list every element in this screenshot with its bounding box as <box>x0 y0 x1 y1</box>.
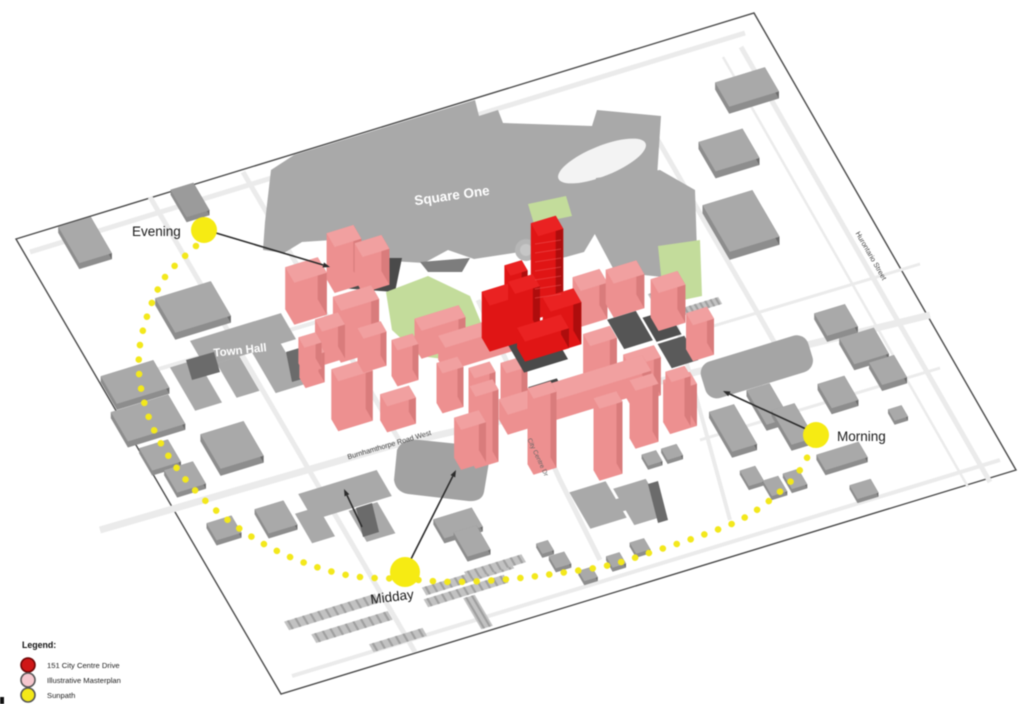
svg-text:151 City Centre Drive: 151 City Centre Drive <box>47 661 120 670</box>
svg-text:Evening: Evening <box>132 224 181 239</box>
svg-text:Illustrative Masterplan: Illustrative Masterplan <box>47 676 121 685</box>
svg-text:Sunpath: Sunpath <box>47 691 75 700</box>
svg-text:Morning: Morning <box>837 429 886 444</box>
svg-text:Legend:: Legend: <box>22 640 56 650</box>
